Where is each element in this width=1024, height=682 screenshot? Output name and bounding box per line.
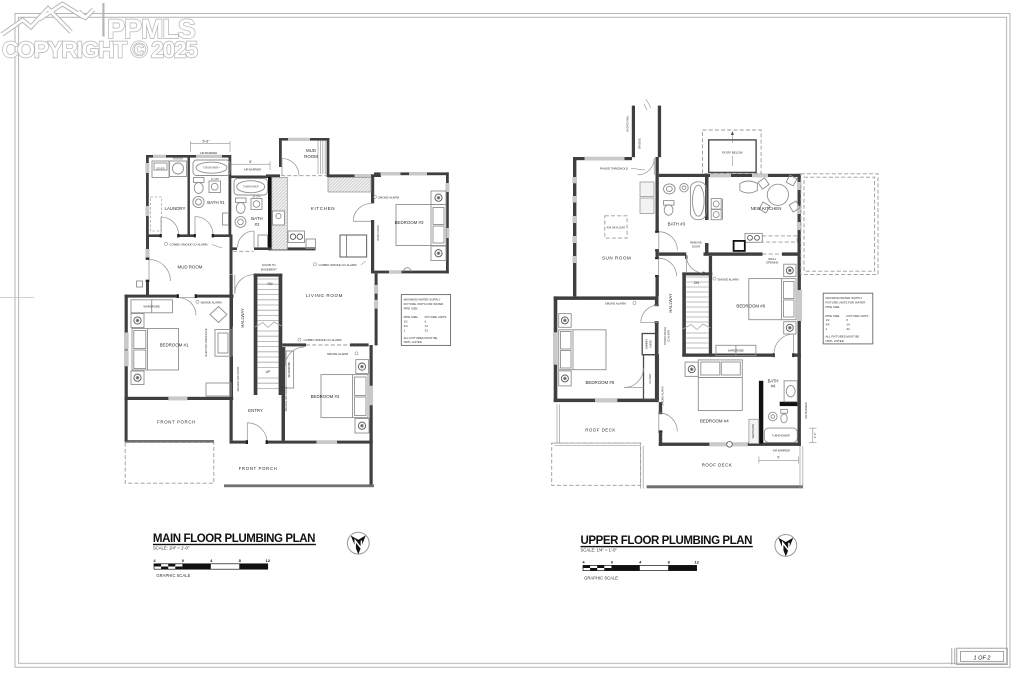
svg-text:FIXTURE UNITS FOR WATER: FIXTURE UNITS FOR WATER (404, 302, 444, 306)
svg-text:FIXTURE UNITS: FIXTURE UNITS (847, 314, 869, 318)
svg-text:BATH: BATH (251, 216, 262, 221)
svg-text:MAIN FLOOR PLUMBING PLAN: MAIN FLOOR PLUMBING PLAN (153, 533, 316, 545)
svg-text:DN: DN (268, 282, 273, 286)
svg-text:AIR BARRIER: AIR BARRIER (804, 402, 808, 419)
svg-text:SMOKE ALARM: SMOKE ALARM (327, 352, 349, 356)
svg-text:NRTL LISTED: NRTL LISTED (404, 340, 422, 344)
svg-text:BEDROOM #4: BEDROOM #4 (700, 418, 729, 423)
svg-text:SEALED OFF DOOR: SEALED OFF DOOR (236, 367, 240, 392)
svg-text:BARN DOOR: BARN DOOR (377, 225, 380, 240)
svg-text:BEDROOM #3: BEDROOM #3 (395, 220, 424, 225)
svg-text:TUB/SHOWER: TUB/SHOWER (772, 434, 790, 438)
svg-text:5'-6": 5'-6" (203, 139, 211, 143)
svg-text:WARDROBE: WARDROBE (287, 361, 291, 377)
svg-text:ROOF DECK: ROOF DECK (585, 428, 616, 433)
svg-text:14: 14 (425, 324, 429, 328)
svg-text:NRTL LISTED: NRTL LISTED (826, 339, 844, 343)
svg-text:BRIDGE: BRIDGE (638, 138, 642, 149)
svg-text:TUB/SHOWER: TUB/SHOWER (243, 187, 259, 189)
svg-text:SMOKE ALARM: SMOKE ALARM (718, 277, 740, 281)
svg-text:PIPE SIZE:: PIPE SIZE: (826, 305, 841, 309)
svg-text:FIXTURE UNITS FOR WATER: FIXTURE UNITS FOR WATER (826, 301, 866, 305)
svg-text:HALLWAY: HALLWAY (668, 293, 673, 312)
svg-text:SMOKE ALARM: SMOKE ALARM (661, 387, 665, 406)
svg-text:RANGE THRESHOLD: RANGE THRESHOLD (600, 167, 628, 171)
svg-text:DN: DN (694, 281, 699, 285)
svg-text:#2: #2 (255, 222, 260, 227)
svg-text:#4: #4 (771, 384, 776, 389)
svg-text:1/2: 1/2 (404, 320, 408, 324)
svg-text:BEDROOM #6: BEDROOM #6 (736, 303, 765, 308)
svg-text:TUB/SHOWER +: TUB/SHOWER + (203, 168, 221, 170)
svg-text:LIVING ROOM: LIVING ROOM (306, 293, 343, 298)
svg-text:SMOKE ALARM: SMOKE ALARM (201, 301, 223, 305)
svg-text:SMOKE ALARM: SMOKE ALARM (378, 196, 400, 200)
svg-text:CO ALARM: CO ALARM (668, 330, 671, 342)
svg-text:WARDROBE: WARDROBE (143, 305, 160, 309)
svg-text:GRAPHIC SCALE: GRAPHIC SCALE (156, 573, 190, 578)
svg-text:14: 14 (847, 323, 851, 327)
svg-text:CHASE: CHASE (650, 340, 653, 348)
svg-text:5': 5' (777, 456, 780, 460)
svg-text:LAUNDRY: LAUNDRY (165, 206, 186, 211)
svg-text:WARDROBE: WARDROBE (752, 423, 755, 438)
svg-text:KITCHEN: KITCHEN (311, 206, 335, 211)
svg-text:SUN ROOM: SUN ROOM (602, 256, 631, 261)
svg-text:ALL FIXTURES MUST BE: ALL FIXTURES MUST BE (404, 336, 438, 340)
svg-text:MUD ROOM: MUD ROOM (178, 265, 203, 270)
svg-text:REMOVE: REMOVE (690, 241, 702, 245)
svg-text:BATH #1: BATH #1 (207, 200, 225, 205)
svg-text:HALLWAY: HALLWAY (240, 308, 245, 327)
svg-text:ENTRY: ENTRY (248, 408, 263, 413)
svg-text:12: 12 (694, 560, 699, 565)
svg-text:OPENING: OPENING (766, 261, 778, 265)
svg-text:30 GPH: 30 GPH (252, 196, 261, 198)
svg-text:DOOR: DOOR (692, 244, 700, 248)
svg-text:COMBO SMOKE CO ALARM: COMBO SMOKE CO ALARM (170, 243, 208, 247)
svg-text:SCALE: 1/4" = 1'-0": SCALE: 1/4" = 1'-0" (153, 546, 190, 551)
svg-text:SCALE: 1/4" = 1'-0": SCALE: 1/4" = 1'-0" (581, 547, 618, 552)
svg-text:2'-4": 2'-4" (813, 432, 817, 438)
svg-text:AIR BARRIER: AIR BARRIER (200, 151, 217, 155)
svg-text:FRONT PORCH: FRONT PORCH (239, 466, 278, 471)
svg-text:WASHER: WASHER (173, 158, 183, 161)
svg-text:BEDROOM #2: BEDROOM #2 (311, 394, 340, 399)
svg-text:COMBO SMOKE CO ALARM: COMBO SMOKE CO ALARM (319, 263, 357, 267)
svg-text:MAXIMUM WATER SUPPLY: MAXIMUM WATER SUPPLY (826, 296, 863, 300)
svg-text:PIPE SIZE:: PIPE SIZE: (826, 314, 841, 318)
svg-text:UPPER FLOOR PLUMBING PLAN: UPPER FLOOR PLUMBING PLAN (581, 535, 753, 547)
svg-text:ROOF DECK: ROOF DECK (702, 463, 733, 468)
svg-text:CLOSET: CLOSET (648, 373, 652, 384)
svg-text:12: 12 (265, 558, 270, 563)
svg-text:AIR BARRIER: AIR BARRIER (773, 448, 790, 452)
svg-text:W OPEN RAIL: W OPEN RAIL (626, 115, 629, 132)
svg-text:1 OF 2: 1 OF 2 (974, 655, 992, 661)
svg-text:PIPE SIZE:: PIPE SIZE: (404, 306, 419, 310)
svg-text:UP: UP (266, 370, 271, 374)
svg-text:30 GPH: 30 GPH (211, 179, 220, 181)
svg-text:ROOM: ROOM (304, 154, 318, 159)
svg-text:ELECTRIC FIREPLACE: ELECTRIC FIREPLACE (204, 328, 208, 356)
svg-text:BEDROOM #1: BEDROOM #1 (160, 343, 189, 348)
svg-text:ALL FIXTURES MUST BE: ALL FIXTURES MUST BE (826, 334, 860, 338)
svg-text:BEDROOM #5: BEDROOM #5 (586, 380, 615, 385)
svg-text:1/2: 1/2 (826, 318, 830, 322)
svg-text:BASEMENT: BASEMENT (261, 267, 277, 271)
svg-text:3/4: 3/4 (826, 323, 830, 327)
svg-text:NEW KITCHEN: NEW KITCHEN (751, 206, 782, 211)
svg-text:COMBO SMOKE CO ALARM: COMBO SMOKE CO ALARM (304, 338, 342, 342)
svg-text:ROOF BELOW: ROOF BELOW (722, 151, 743, 155)
svg-text:32: 32 (425, 328, 429, 332)
svg-text:FIXTURE UNITS: FIXTURE UNITS (425, 315, 447, 319)
svg-text:32: 32 (847, 327, 851, 331)
svg-text:4X4 SKYLIGHT: 4X4 SKYLIGHT (607, 226, 626, 230)
svg-text:MUD: MUD (306, 148, 316, 153)
svg-text:INFILL: INFILL (768, 257, 777, 261)
svg-text:WARDROBE: WARDROBE (728, 349, 744, 353)
svg-text:CHIMNEY: CHIMNEY (647, 338, 649, 349)
svg-text:DRYER: DRYER (157, 169, 165, 171)
svg-text:FRONT PORCH: FRONT PORCH (157, 420, 196, 425)
svg-text:AIR BARRIER: AIR BARRIER (244, 168, 261, 172)
svg-text:BATH #3: BATH #3 (668, 221, 686, 226)
svg-text:MAXIMUM WATER SUPPLY: MAXIMUM WATER SUPPLY (404, 298, 441, 302)
svg-text:SEALED OFF DOOR: SEALED OFF DOOR (284, 387, 288, 412)
svg-text:5': 5' (249, 160, 252, 164)
svg-text:COPYRIGHT © 2025: COPYRIGHT © 2025 (2, 37, 198, 63)
svg-text:GRAPHIC SCALE: GRAPHIC SCALE (584, 575, 618, 580)
svg-text:3/4: 3/4 (404, 324, 408, 328)
svg-text:PIPE SIZE:: PIPE SIZE: (404, 315, 419, 319)
svg-text:SMOKE ALARM: SMOKE ALARM (605, 301, 627, 305)
